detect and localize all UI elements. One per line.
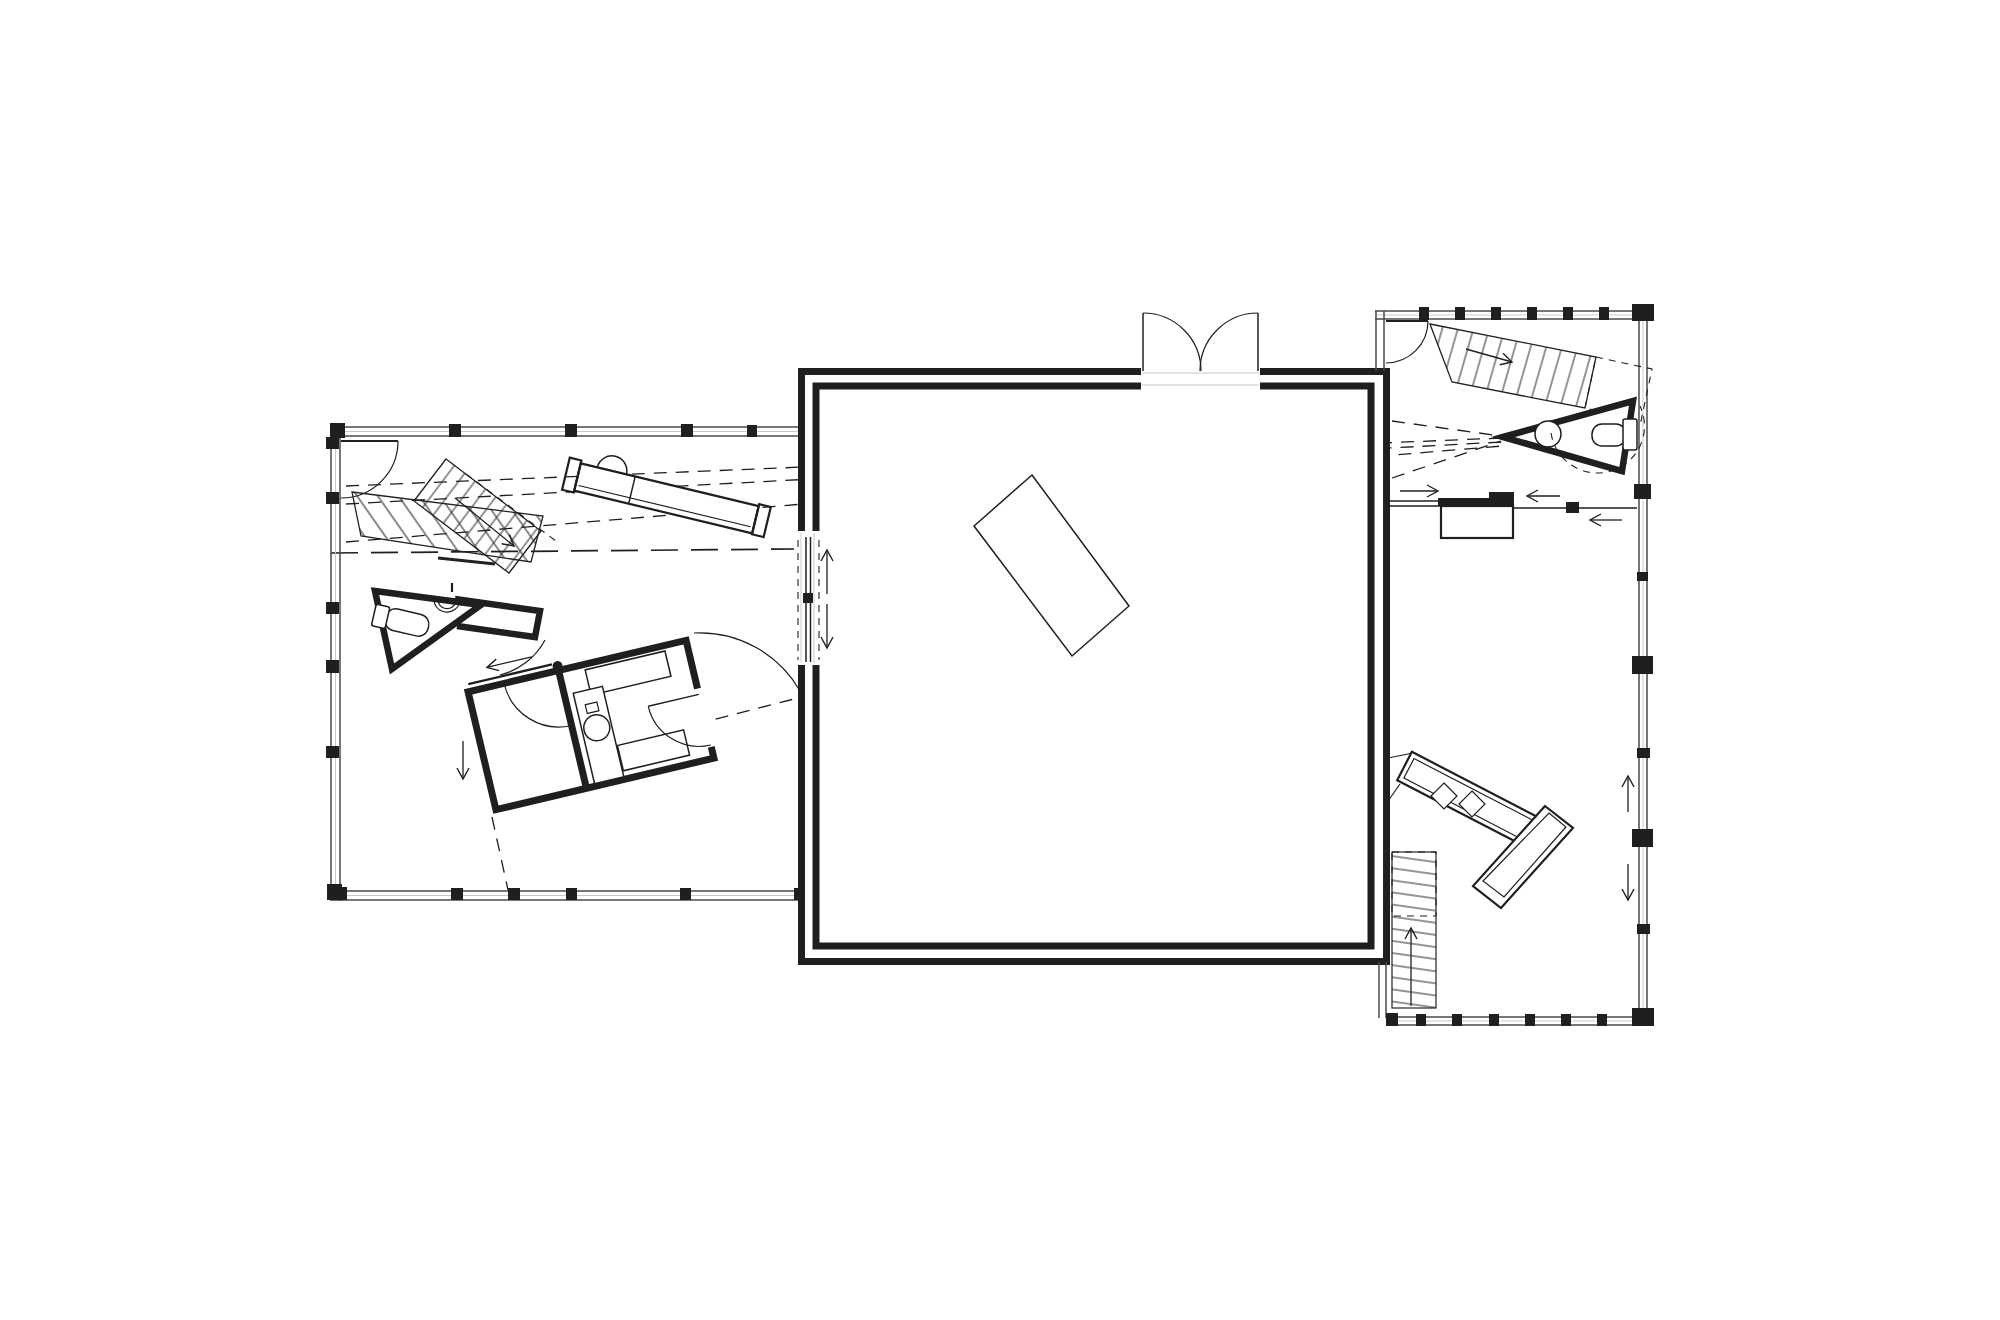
door-swing-icon: [341, 441, 398, 498]
wing-wc-triangle: [1503, 401, 1644, 473]
large-door-swing-icon: [694, 633, 800, 691]
counter-edge: [1438, 498, 1514, 506]
wing-entry-door: [1386, 321, 1428, 363]
floor-plan-sheet: [0, 0, 2000, 1320]
triangle-wc-room: [371, 583, 545, 675]
bathroom-block: [464, 620, 720, 810]
washbasin-icon: [1535, 421, 1561, 447]
right-wing: [1375, 304, 1654, 1026]
outer-wall: [802, 372, 1387, 962]
basin-counter: [562, 446, 774, 538]
door-swing-icon: [500, 640, 545, 675]
lower-stair: [1392, 852, 1436, 1008]
floor-plan-drawing: [0, 0, 2000, 1320]
left-wing: [326, 423, 815, 901]
entry-door: [341, 441, 398, 498]
door-swing-icon: [1386, 321, 1428, 363]
mid-partition: [1390, 491, 1637, 538]
sliding-door-arrow-icon: [487, 657, 532, 668]
mullion-post: [330, 423, 345, 438]
corner-post: [1632, 1008, 1654, 1026]
closet-box: [1441, 506, 1513, 538]
slider-block: [1566, 502, 1579, 513]
corner-post: [1632, 304, 1654, 321]
central-hall: [794, 313, 1387, 962]
main-double-door: [1141, 313, 1260, 396]
skylight-and-stair: [352, 459, 556, 573]
